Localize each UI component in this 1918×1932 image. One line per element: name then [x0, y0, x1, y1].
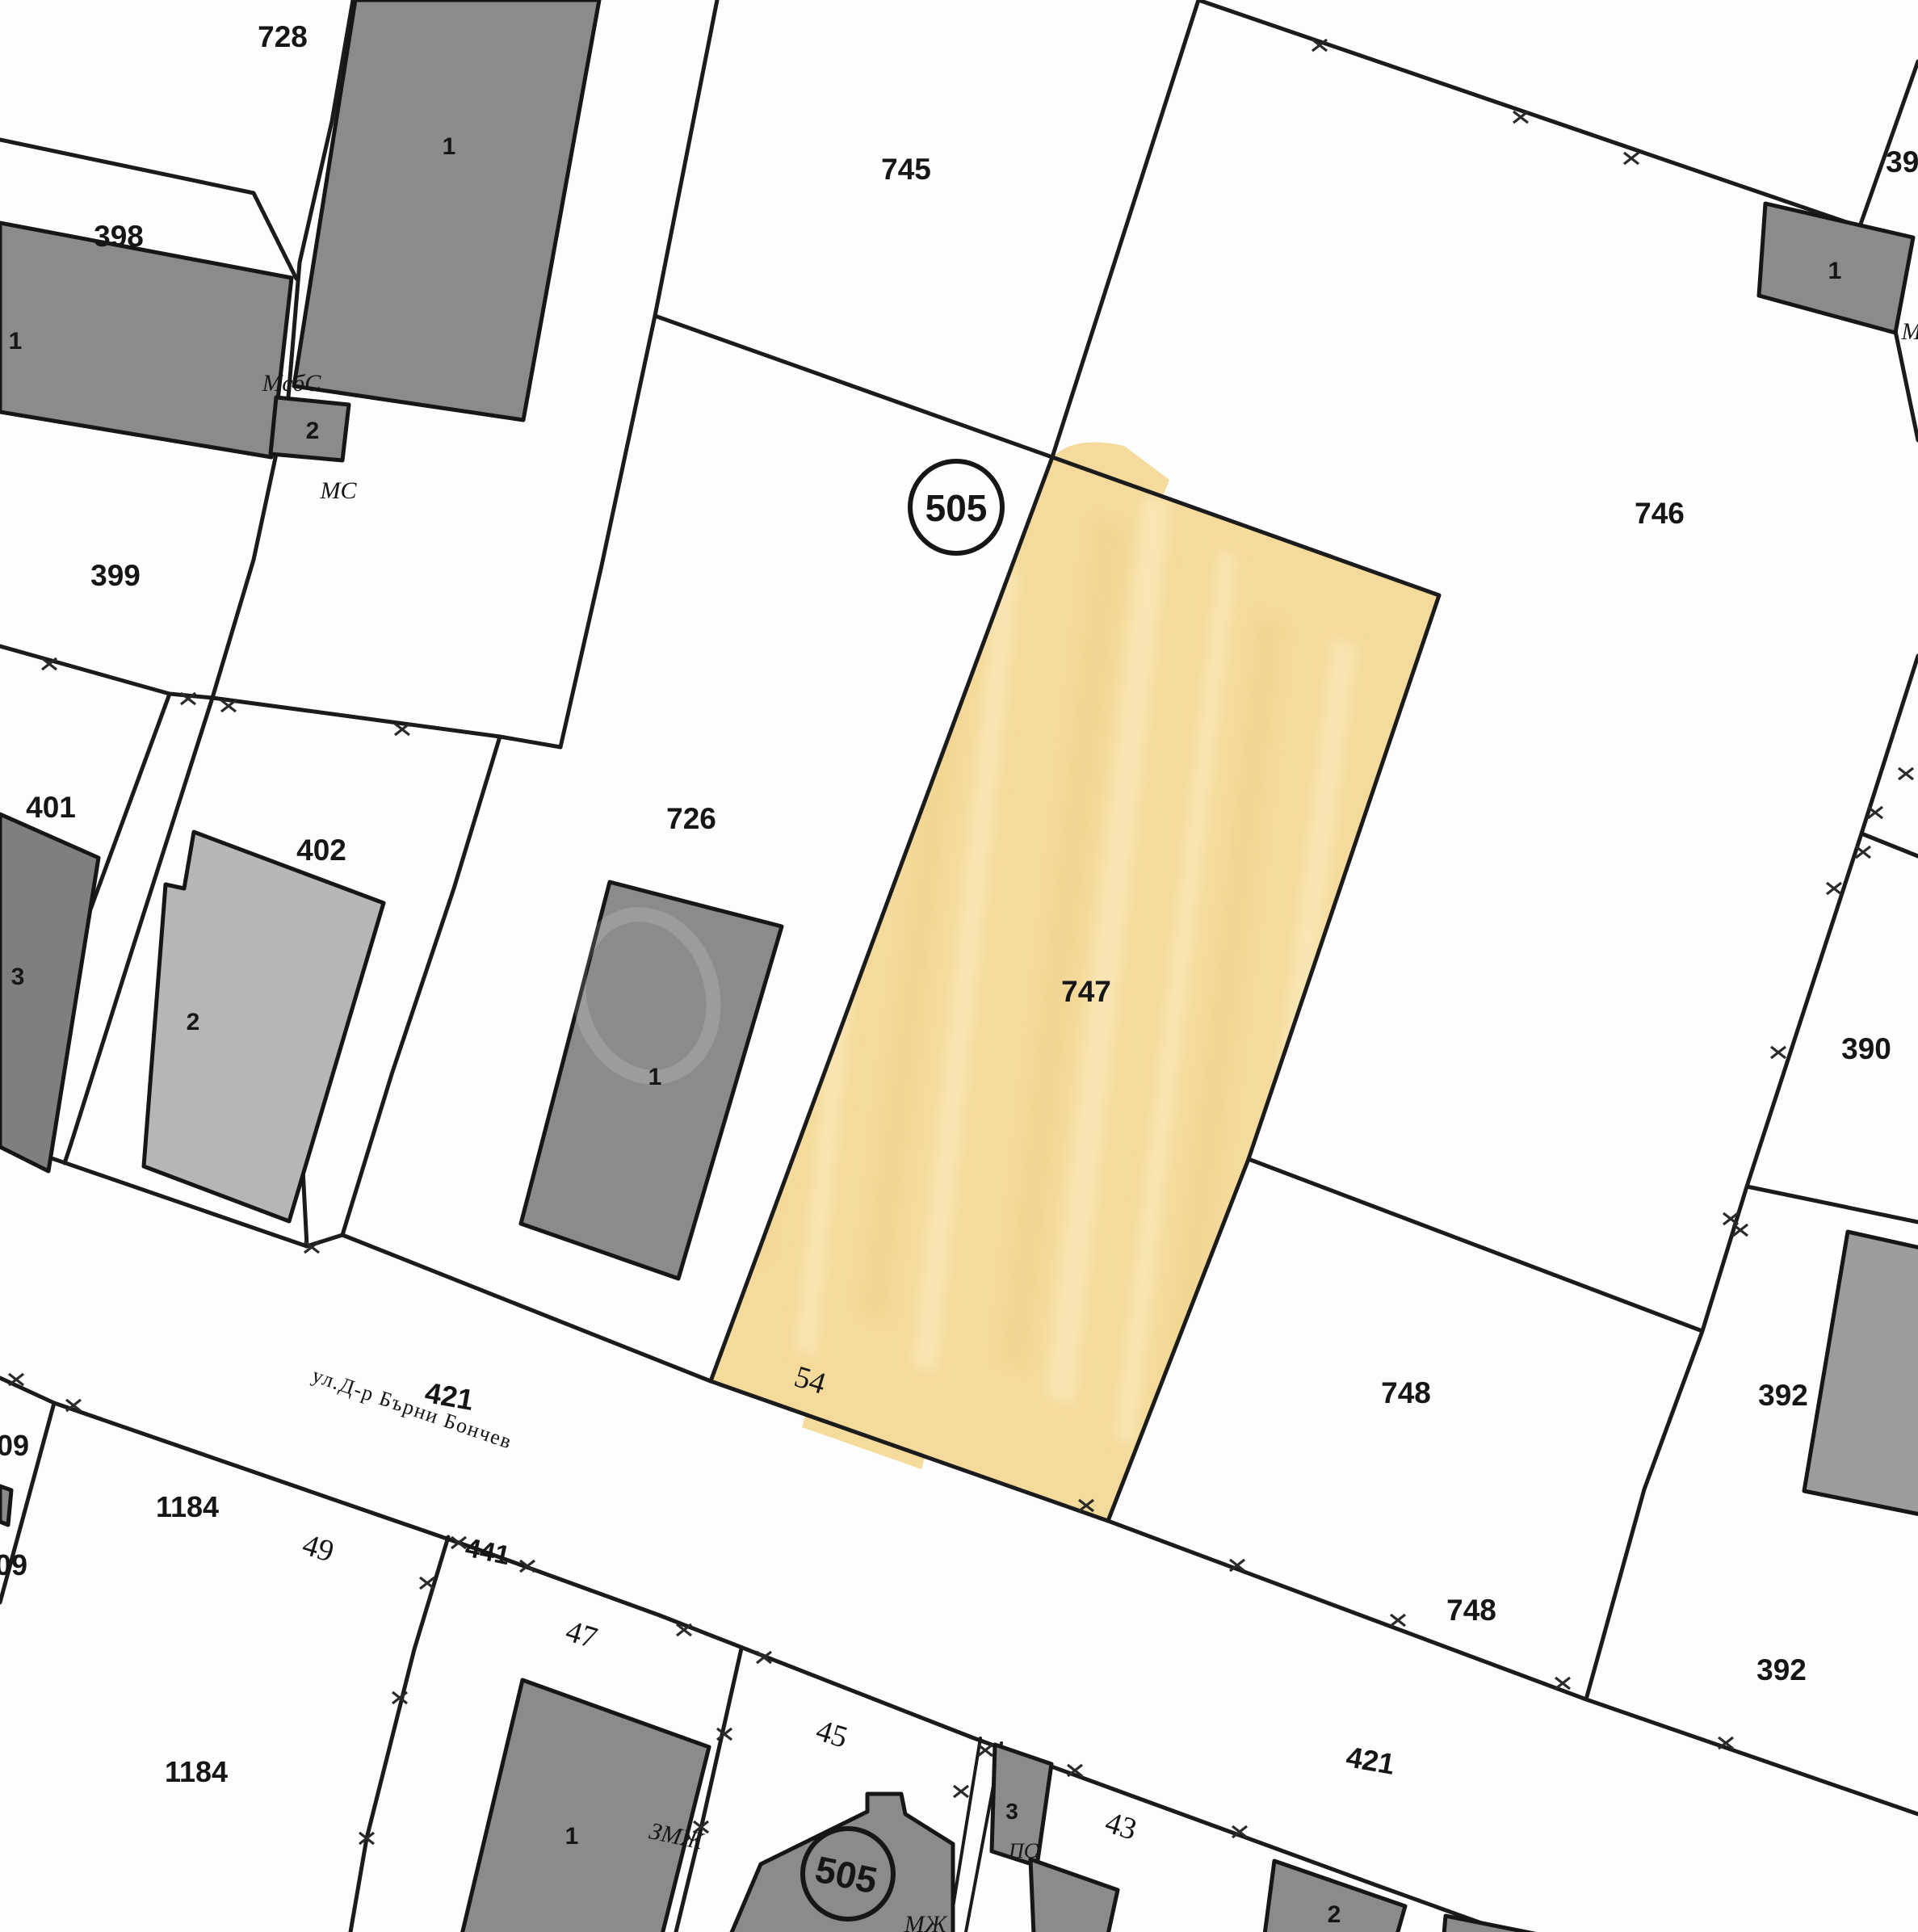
svg-text:390: 390 — [1841, 1032, 1891, 1065]
svg-text:745: 745 — [881, 153, 931, 186]
svg-text:1: 1 — [1828, 258, 1842, 284]
svg-text:401: 401 — [26, 791, 76, 824]
svg-text:390: 390 — [1886, 145, 1918, 178]
svg-text:09: 09 — [0, 1429, 29, 1462]
svg-text:2: 2 — [1328, 1901, 1341, 1928]
svg-text:3: 3 — [11, 964, 25, 990]
svg-text:398: 398 — [94, 220, 144, 253]
svg-text:402: 402 — [296, 834, 346, 867]
svg-text:МС: МС — [1901, 318, 1918, 345]
svg-text:ПС: ПС — [1008, 1839, 1039, 1863]
svg-text:09: 09 — [0, 1548, 27, 1581]
svg-text:747: 747 — [1061, 975, 1111, 1008]
svg-text:1: 1 — [565, 1823, 579, 1850]
svg-text:746: 746 — [1635, 497, 1685, 530]
svg-text:505: 505 — [925, 487, 988, 529]
svg-text:1: 1 — [648, 1064, 662, 1090]
svg-text:1184: 1184 — [165, 1755, 228, 1788]
svg-text:1: 1 — [443, 133, 456, 160]
svg-text:392: 392 — [1756, 1653, 1807, 1686]
svg-text:399: 399 — [90, 559, 141, 592]
svg-text:1184: 1184 — [156, 1490, 219, 1523]
svg-text:728: 728 — [258, 20, 308, 53]
svg-text:2: 2 — [187, 1009, 200, 1035]
svg-text:748: 748 — [1381, 1376, 1431, 1409]
svg-text:МЖ: МЖ — [904, 1911, 948, 1932]
svg-text:МсбС: МсбС — [262, 370, 322, 397]
svg-text:392: 392 — [1758, 1379, 1808, 1412]
svg-text:2: 2 — [306, 418, 320, 444]
svg-text:748: 748 — [1446, 1594, 1496, 1627]
svg-text:3: 3 — [1005, 1799, 1018, 1824]
svg-text:726: 726 — [666, 802, 716, 835]
svg-text:1: 1 — [9, 328, 23, 355]
svg-text:МС: МС — [320, 477, 358, 504]
